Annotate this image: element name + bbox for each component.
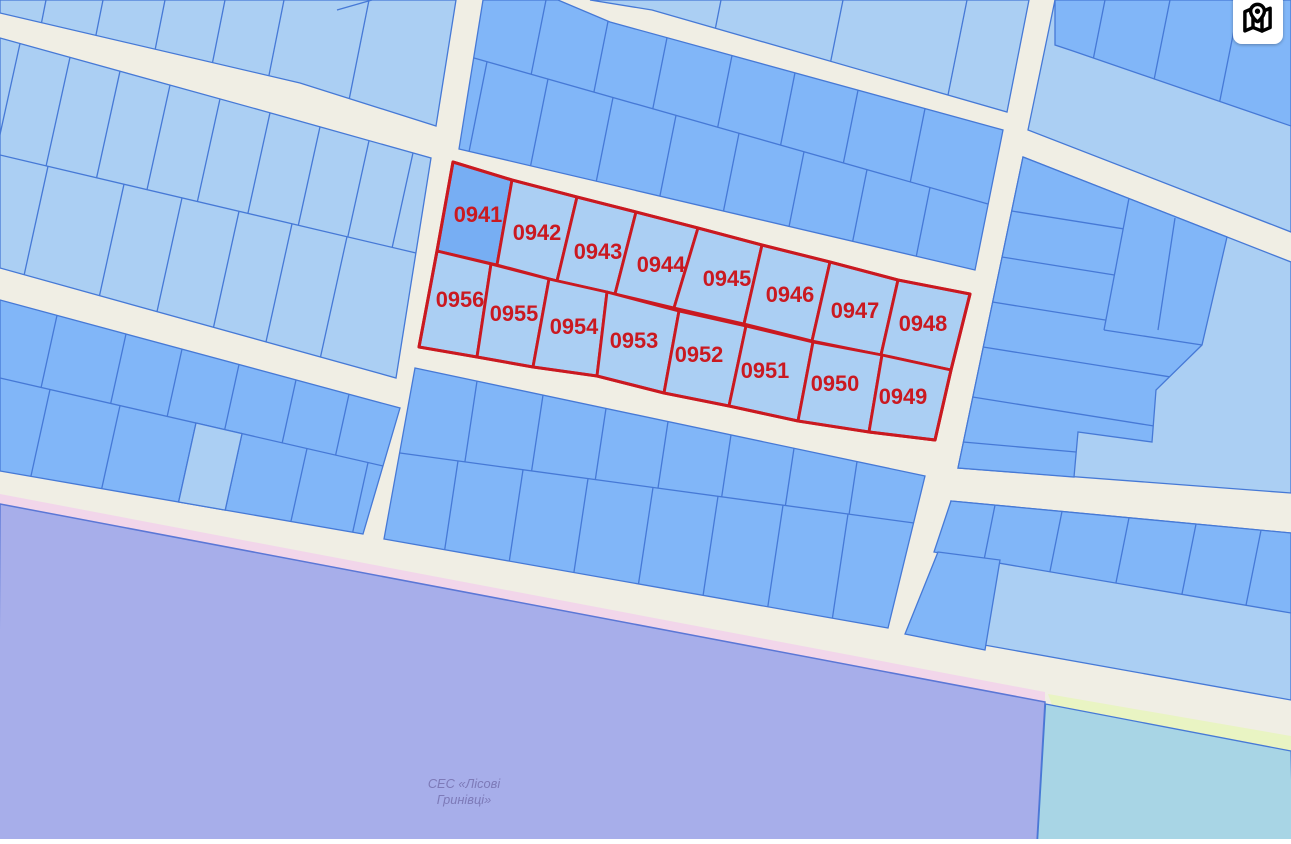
svg-text:0952: 0952: [675, 342, 724, 367]
svg-text:0956: 0956: [436, 287, 485, 312]
svg-text:0954: 0954: [550, 314, 599, 339]
svg-text:0949: 0949: [879, 384, 928, 409]
svg-text:0942: 0942: [513, 220, 562, 245]
svg-text:0951: 0951: [741, 358, 790, 383]
svg-text:0943: 0943: [574, 239, 623, 264]
svg-text:Гринівці»: Гринівці»: [437, 792, 491, 807]
svg-text:0944: 0944: [637, 252, 686, 277]
svg-text:0950: 0950: [811, 371, 860, 396]
svg-text:0941: 0941: [454, 202, 503, 227]
svg-text:0948: 0948: [899, 311, 948, 336]
svg-text:СЕС «Лісові: СЕС «Лісові: [428, 776, 502, 791]
svg-text:0955: 0955: [490, 301, 539, 326]
svg-text:0947: 0947: [831, 298, 880, 323]
svg-text:0946: 0946: [766, 282, 815, 307]
svg-text:0945: 0945: [703, 266, 752, 291]
svg-text:0953: 0953: [610, 328, 659, 353]
